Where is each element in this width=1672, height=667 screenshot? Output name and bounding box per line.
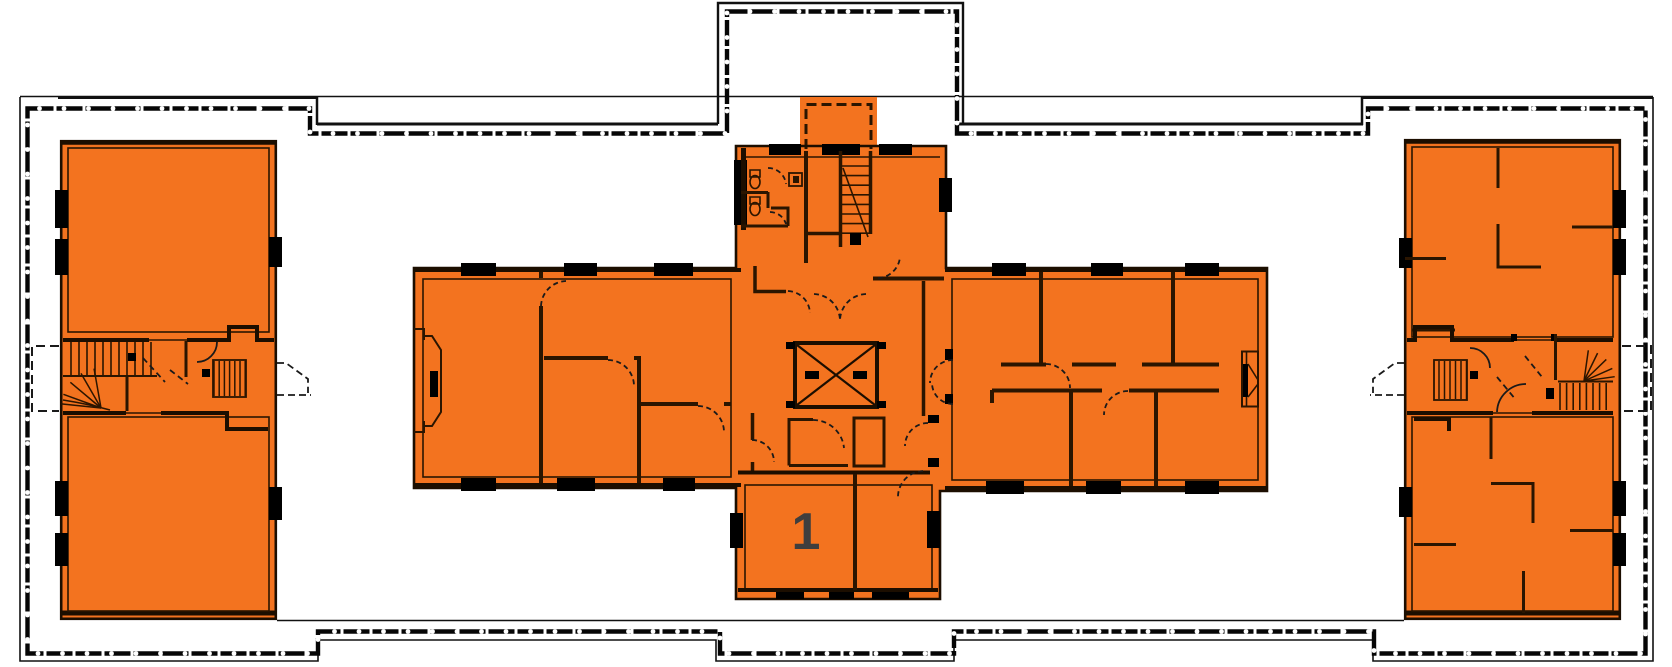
svg-text:1: 1 bbox=[792, 503, 821, 561]
